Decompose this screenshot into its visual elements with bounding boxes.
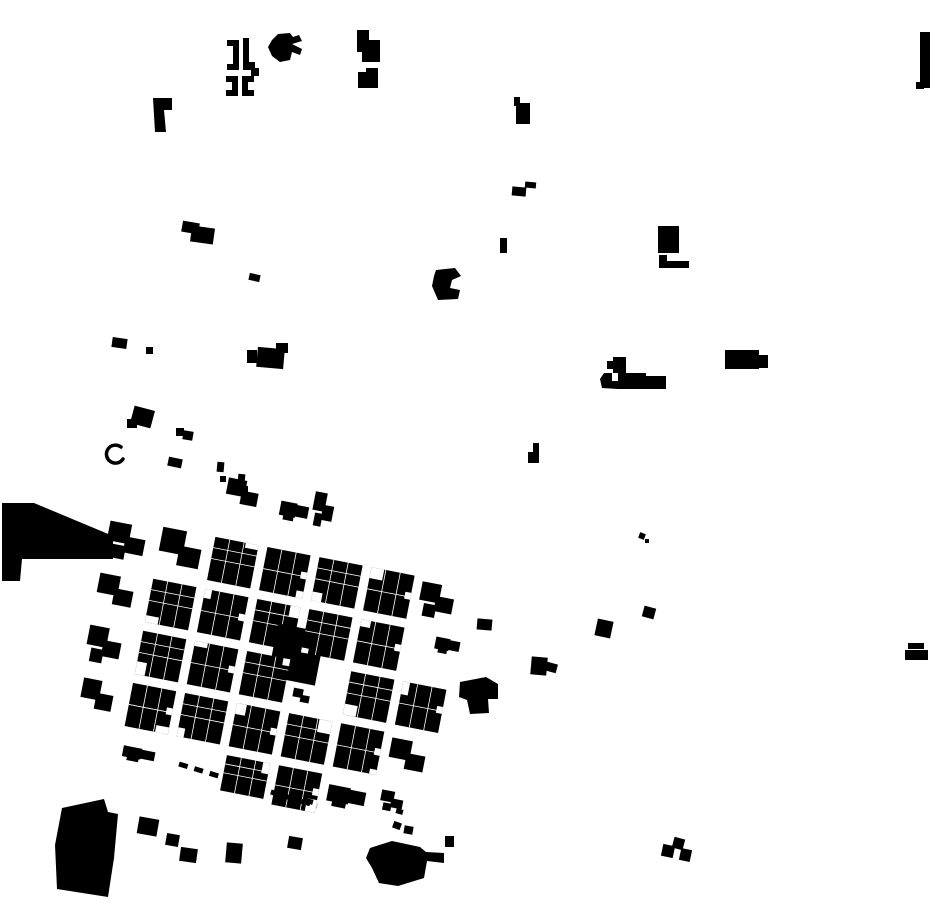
building-footprint xyxy=(55,799,118,897)
figure-ground-map xyxy=(0,0,930,924)
building-footprint xyxy=(111,337,127,349)
building-footprint xyxy=(220,476,226,482)
town-block xyxy=(125,683,177,735)
building-footprint xyxy=(146,347,153,354)
town-block xyxy=(229,703,281,755)
building-footprint xyxy=(247,350,257,363)
building-footprint xyxy=(445,836,454,847)
town-block xyxy=(301,609,353,661)
building-footprint xyxy=(127,419,137,428)
building-footprint xyxy=(908,643,924,649)
town-block xyxy=(197,589,249,641)
building-footprint xyxy=(238,474,246,484)
building-footprint xyxy=(190,225,215,244)
building-footprint xyxy=(276,343,288,353)
building-footprint xyxy=(512,186,527,196)
building-footprint xyxy=(916,82,924,89)
building-footprint xyxy=(645,539,649,543)
building-footprint xyxy=(525,182,536,189)
town-block xyxy=(207,537,259,589)
town-block xyxy=(395,681,447,733)
town-block xyxy=(311,557,363,609)
town-block xyxy=(363,567,415,619)
building-footprint xyxy=(658,226,679,253)
building-footprint xyxy=(530,656,548,675)
building-footprint xyxy=(137,816,160,836)
building-footprint xyxy=(182,430,193,441)
town-block xyxy=(135,631,187,683)
building-footprint xyxy=(403,825,413,834)
building-footprint xyxy=(920,32,930,88)
building-footprint xyxy=(176,428,184,436)
town-block xyxy=(333,723,385,775)
town-block xyxy=(239,651,291,703)
building-footprint xyxy=(500,238,507,253)
building-footprint xyxy=(613,357,626,373)
map-background xyxy=(0,0,930,924)
map-canvas xyxy=(0,0,930,924)
town-block xyxy=(281,713,333,765)
town-block xyxy=(353,619,405,671)
town-block xyxy=(259,547,311,599)
building-footprint xyxy=(225,842,243,863)
town-block xyxy=(271,765,322,813)
town-block xyxy=(177,693,229,745)
building-footprint xyxy=(242,486,248,492)
building-footprint xyxy=(477,618,493,630)
building-footprint xyxy=(757,355,768,368)
town-block xyxy=(343,671,395,723)
building-footprint xyxy=(905,650,928,660)
building-footprint xyxy=(179,847,198,863)
building-footprint xyxy=(725,350,759,369)
town-block xyxy=(187,641,239,693)
town-block xyxy=(145,579,197,631)
building-footprint xyxy=(165,833,180,847)
building-footprint xyxy=(251,68,259,76)
building-footprint xyxy=(287,836,303,850)
building-footprint xyxy=(217,462,225,473)
